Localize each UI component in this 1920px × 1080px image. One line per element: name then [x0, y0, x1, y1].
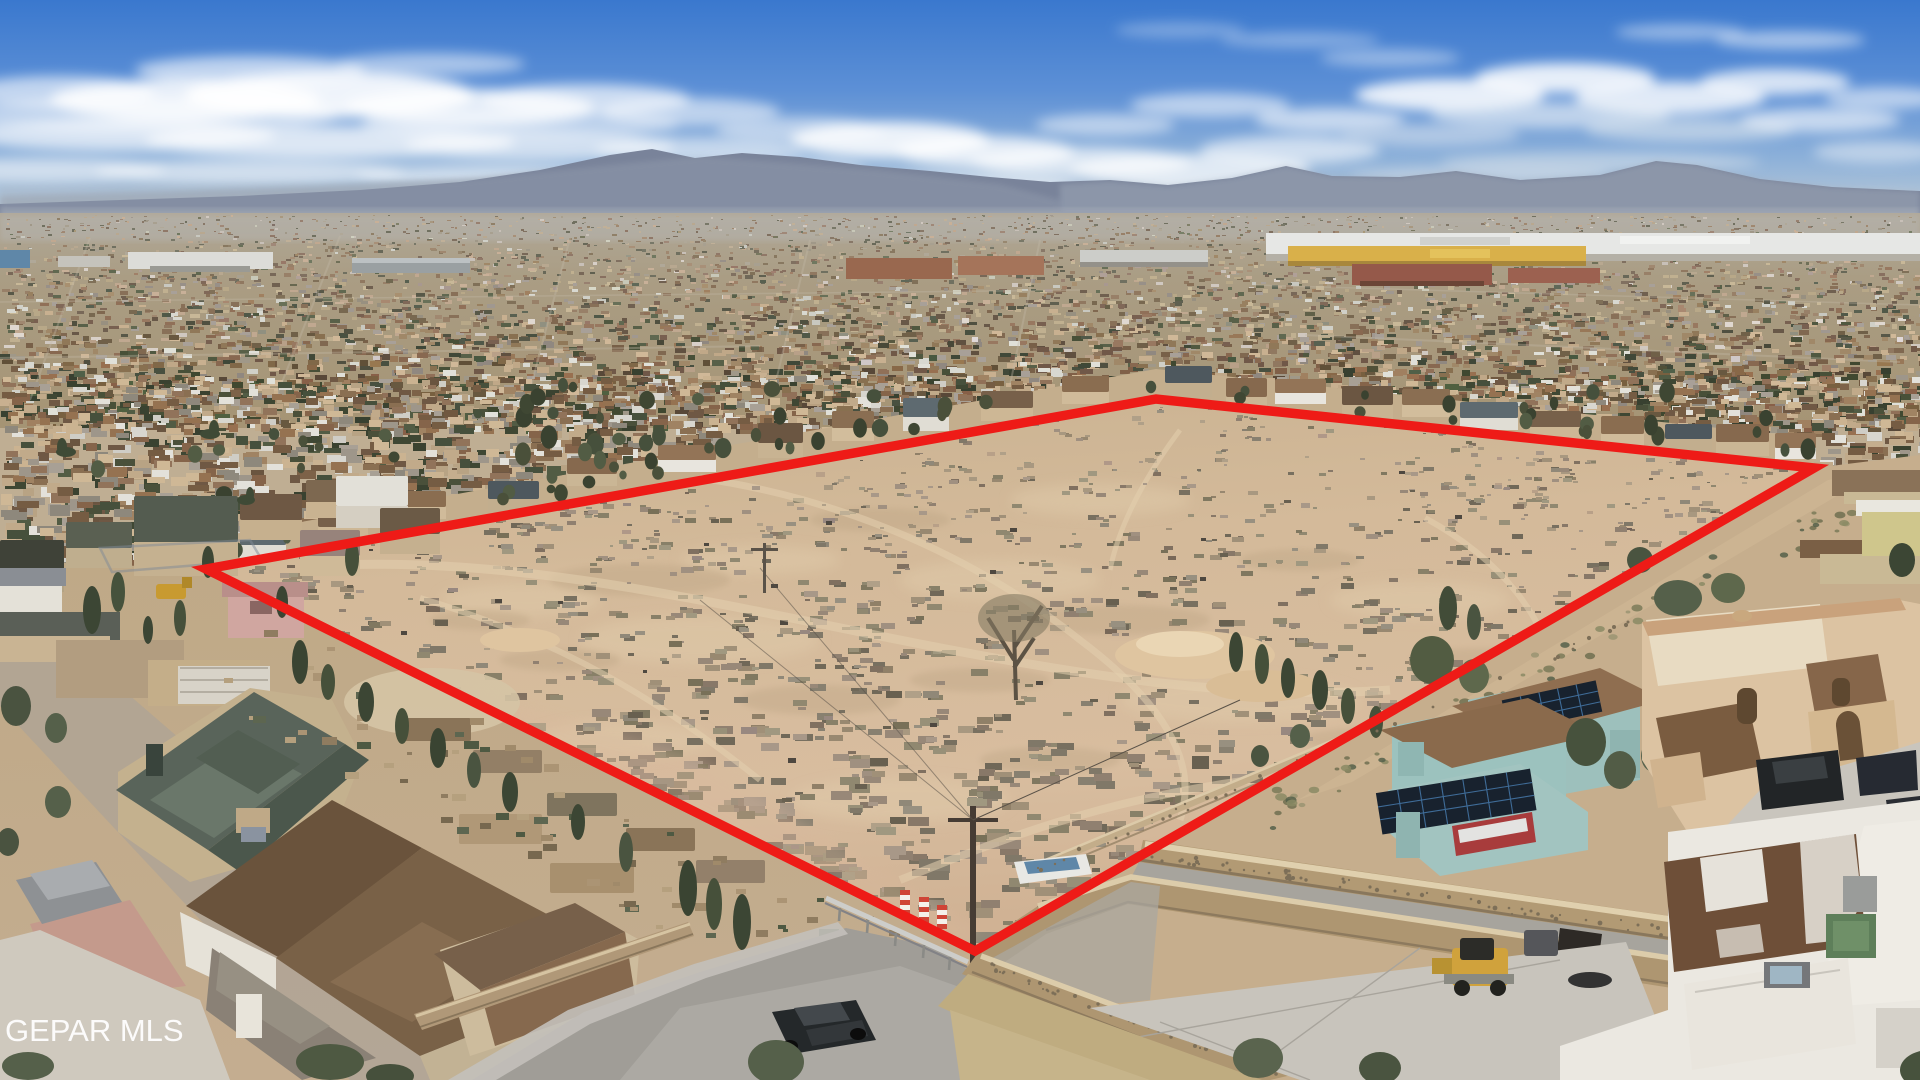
svg-text:GEPAR MLS: GEPAR MLS	[5, 1013, 184, 1048]
